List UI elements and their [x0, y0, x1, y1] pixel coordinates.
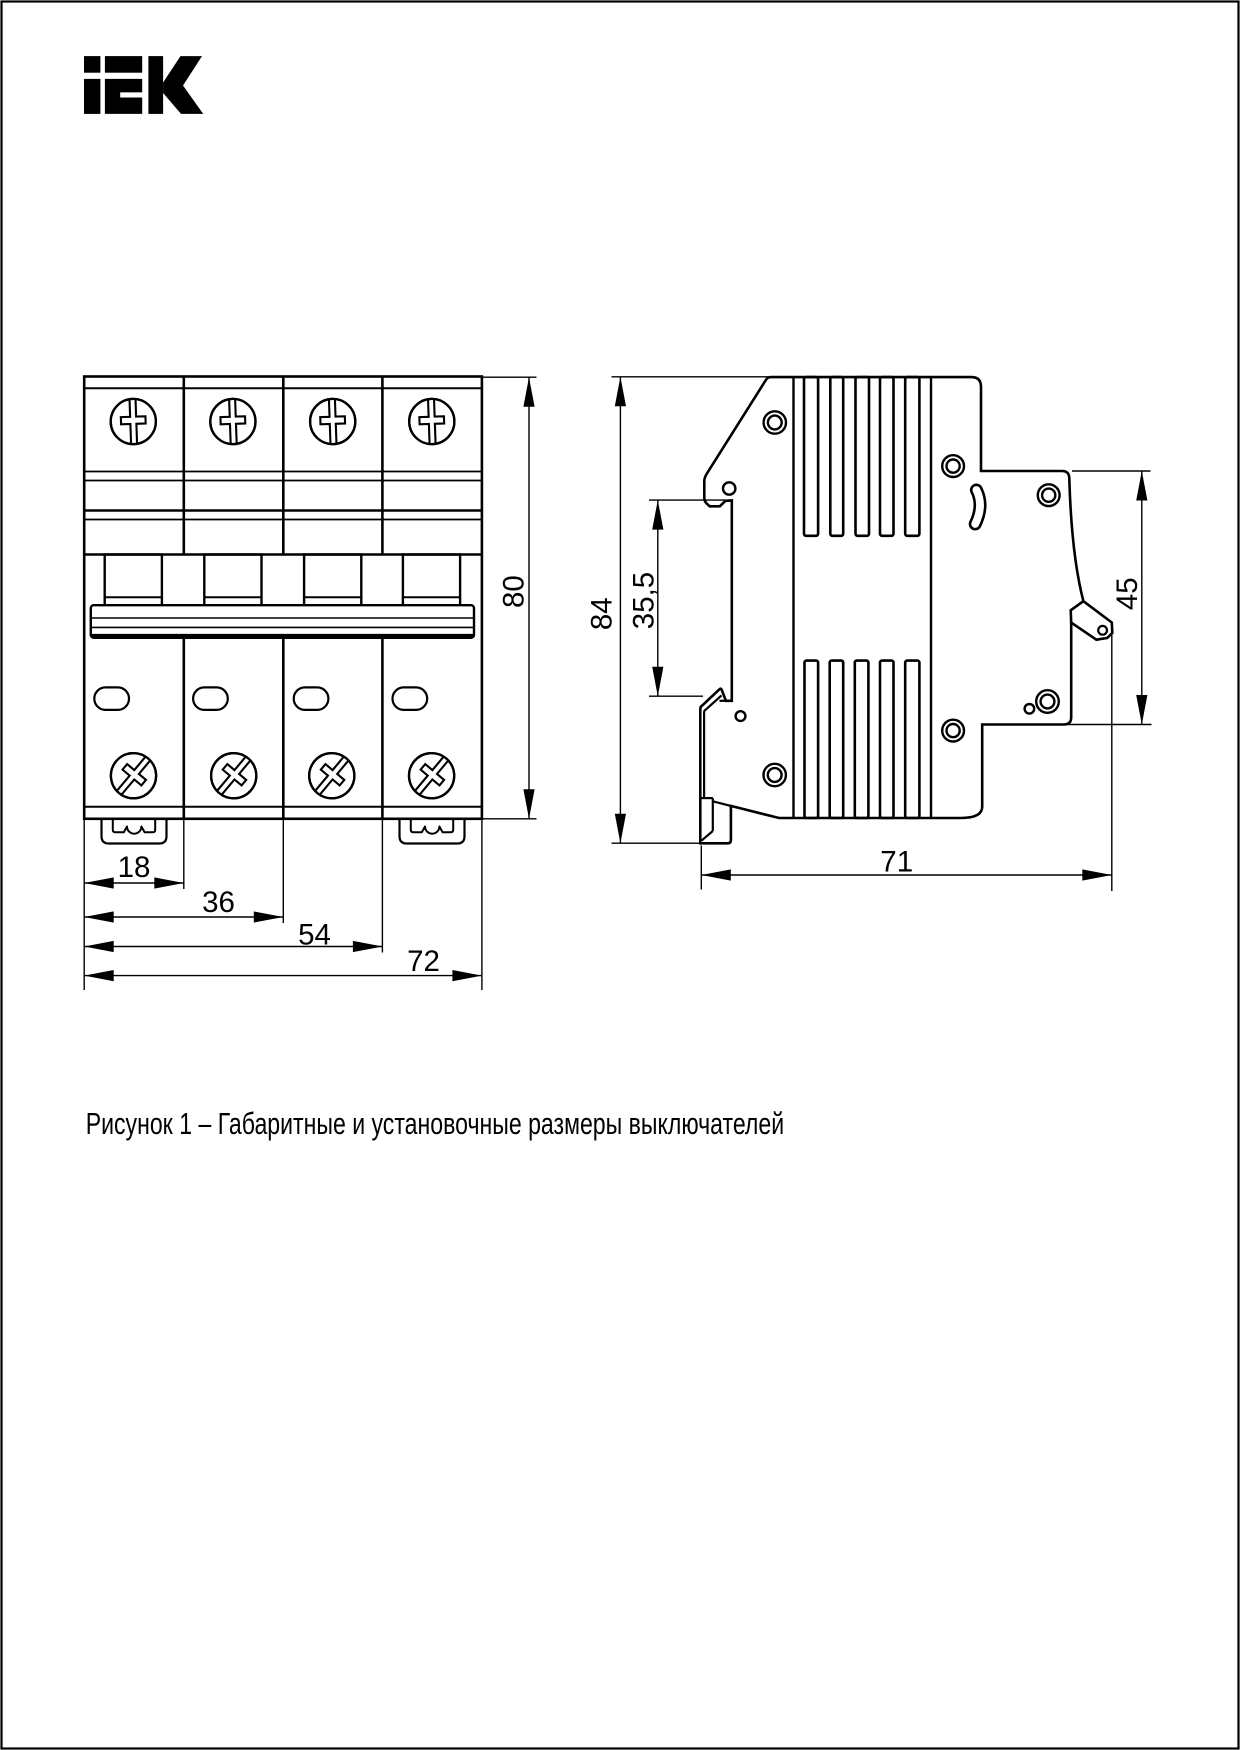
- svg-text:Рисунок 1 – Габаритные и устан: Рисунок 1 – Габаритные и установочные ра…: [86, 1106, 784, 1141]
- svg-text:45: 45: [1111, 577, 1144, 610]
- svg-text:71: 71: [880, 845, 913, 878]
- svg-text:54: 54: [298, 918, 331, 951]
- svg-text:84: 84: [586, 597, 619, 630]
- svg-text:72: 72: [407, 945, 440, 978]
- svg-text:80: 80: [497, 575, 530, 608]
- svg-text:36: 36: [202, 886, 235, 919]
- svg-text:18: 18: [118, 851, 151, 884]
- svg-text:35,5: 35,5: [628, 572, 661, 629]
